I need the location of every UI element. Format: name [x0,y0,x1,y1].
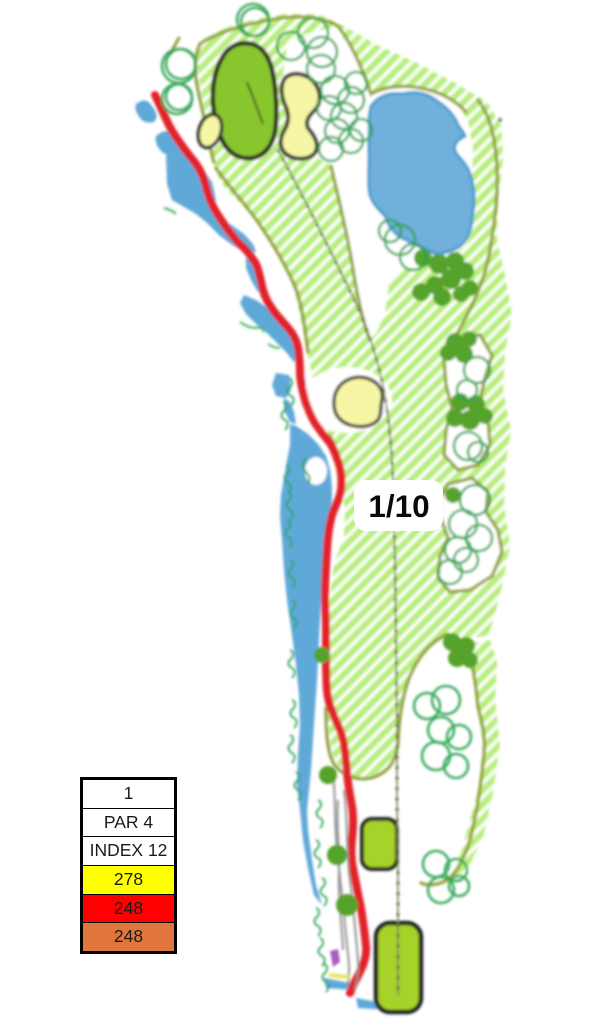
svg-text:1/10: 1/10 [368,488,429,524]
